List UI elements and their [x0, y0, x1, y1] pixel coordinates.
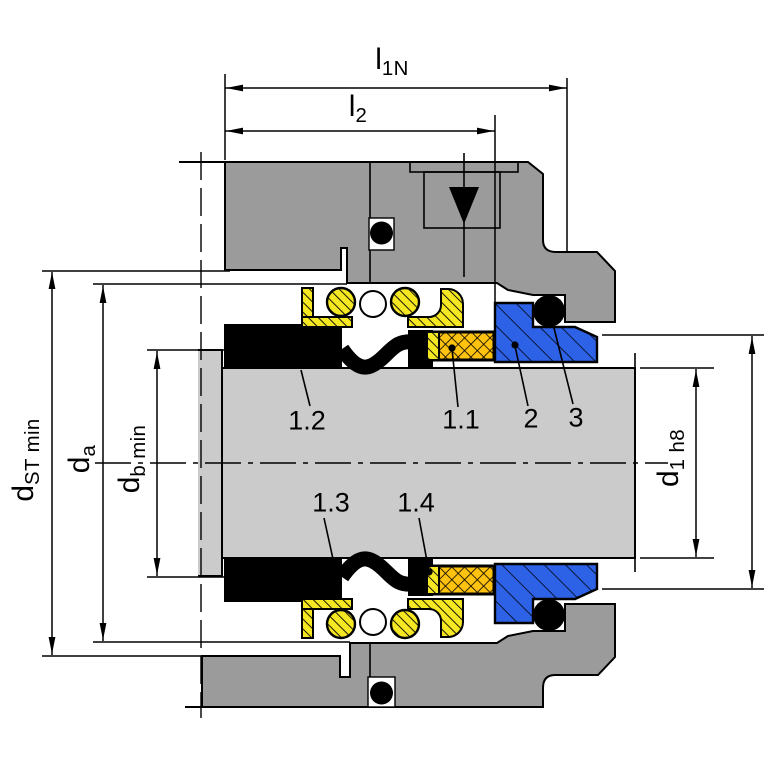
leader-dot-1-4: [425, 568, 432, 575]
seal-drawing: [0, 0, 768, 768]
leader-dot-2: [511, 341, 518, 348]
seal-face-sliver-top: [427, 332, 439, 360]
spring-coil-bottom-1: [327, 610, 355, 638]
spring-retainer-left-bottom-foot: [302, 599, 352, 609]
part-label-2: 2: [523, 406, 538, 433]
part-label-1-4: 1.4: [397, 490, 435, 517]
spring-coil-back-top: [360, 291, 386, 317]
part-label-3: 3: [568, 405, 583, 432]
seat-oring-top: [533, 295, 565, 327]
spring-coil-top-2: [391, 288, 419, 316]
housing-oring-bottom: [370, 682, 393, 705]
label-d-1-h8: d1 h8: [654, 429, 684, 487]
leader-dot-1-1: [448, 344, 455, 351]
part-label-1-2: 1.2: [288, 408, 326, 435]
label-d-st-min: dST min: [9, 418, 39, 501]
spring-coil-top-1: [327, 288, 355, 316]
label-d-a: da: [65, 445, 95, 473]
label-l2: l2: [349, 92, 367, 122]
part-label-1-1: 1.1: [442, 407, 480, 434]
label-l1n: l1N: [375, 45, 409, 75]
seal-drawing-stage: l1N l2 dST min da db min d1 h8 1.2 1.1 2…: [0, 0, 768, 768]
elastomer-block-top: [224, 324, 342, 368]
elastomer-block-bottom: [224, 558, 342, 602]
spring-coil-back-bottom: [360, 609, 386, 635]
housing-oring-top: [370, 222, 393, 245]
spring-retainer-left-top-foot: [302, 317, 352, 327]
spring-coil-bottom-2: [391, 610, 419, 638]
part-label-1-3: 1.3: [312, 490, 350, 517]
label-d-b-min: db min: [115, 425, 145, 494]
seat-oring-bottom: [533, 599, 565, 631]
